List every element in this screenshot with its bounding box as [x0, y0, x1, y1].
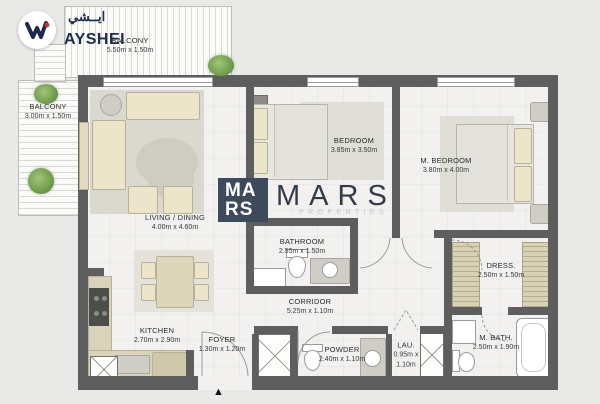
ayshei-arabic-text: ايــشي: [68, 9, 105, 25]
m-bedroom-door-arc: [402, 238, 432, 268]
room-label-m-bath: M. BATH.2.50m x 1.90m: [473, 333, 519, 353]
bedroom-door-arc: [360, 238, 390, 268]
room-label-corridor: CORRIDOR5.25m x 1.10m: [287, 297, 333, 317]
room-label-living: LIVING / DINING4.00m x 4.60m: [145, 213, 205, 233]
entrance-arrow-icon: ▲: [213, 387, 224, 398]
ayshei-logo-mark-icon: [22, 15, 52, 45]
plant-icon: [34, 84, 58, 104]
mars-tile-line2: RS: [225, 200, 268, 219]
room-label-m-bedroom: M. BEDROOM3.80m x 4.00m: [420, 156, 471, 176]
room-label-balcony-left: BALCONY3.00m x 1.50m: [25, 102, 71, 122]
room-label-laundry: LAU.0.95m x 1.10m: [388, 341, 424, 370]
ayshei-logo-circle: [18, 11, 56, 49]
room-label-bedroom: BEDROOM3.85m x 3.50m: [331, 136, 377, 156]
room-label-foyer: FOYER1.30m x 1.20m: [199, 335, 245, 355]
mars-tile-line1: MA: [225, 181, 268, 200]
room-label-kitchen: KITCHEN2.70m x 2.90m: [134, 326, 180, 346]
plant-icon: [28, 168, 54, 194]
mars-subtitle: PROPERTIES: [299, 209, 388, 216]
room-label-bathroom: BATHROOM2.55m x 1.50m: [279, 237, 325, 257]
floor-plan-canvas: BALCONY5.50m x 1.50m BALCONY3.00m x 1.50…: [0, 0, 600, 404]
plant-icon: [208, 55, 234, 76]
mars-logo-tile: MA RS: [218, 178, 268, 222]
ayshei-wordmark: AYSHEI: [64, 31, 125, 49]
room-label-dress: DRESS.2.50m x 1.50m: [478, 261, 524, 281]
laundry-door-fold: [394, 310, 418, 330]
room-label-powder: POWDER2.40m x 1.10m: [319, 345, 365, 365]
